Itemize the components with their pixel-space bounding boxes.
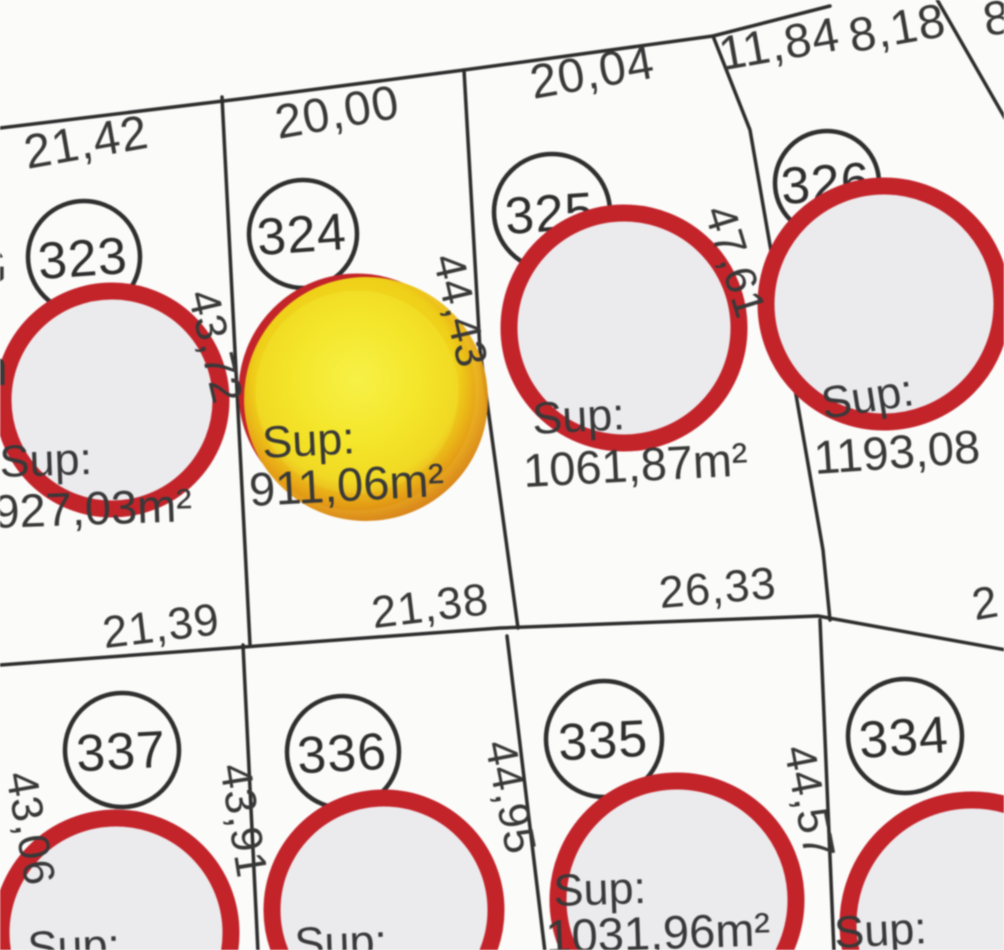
dimension-mid-26-33: 26,33 (657, 557, 779, 618)
lot-number-337: 337 (75, 721, 168, 784)
area-value-335: 1031,96m² (544, 902, 770, 950)
edge-fragment-letter: G (0, 239, 7, 295)
sup-label-325: Sup: (531, 388, 626, 444)
lot-number-323: 323 (36, 227, 130, 291)
sup-label-337: Sup: (27, 919, 121, 950)
area-value-323: 927,03m² (0, 478, 193, 538)
sup-label-323: Sup: (0, 433, 93, 487)
sup-label-336: Sup: (294, 915, 388, 950)
lot-number-324: 324 (255, 203, 349, 267)
lot-number-334: 334 (857, 706, 951, 770)
edge-fragment-small: n (0, 340, 8, 396)
lot-number-336: 336 (296, 723, 389, 786)
parcel-map: 323 324 325 326 337 336 335 334 21,42 20… (0, 0, 1004, 950)
area-value-324: 911,06m² (248, 453, 446, 516)
sup-label-334: Sup: (833, 902, 928, 950)
lot-number-335: 335 (557, 710, 650, 773)
